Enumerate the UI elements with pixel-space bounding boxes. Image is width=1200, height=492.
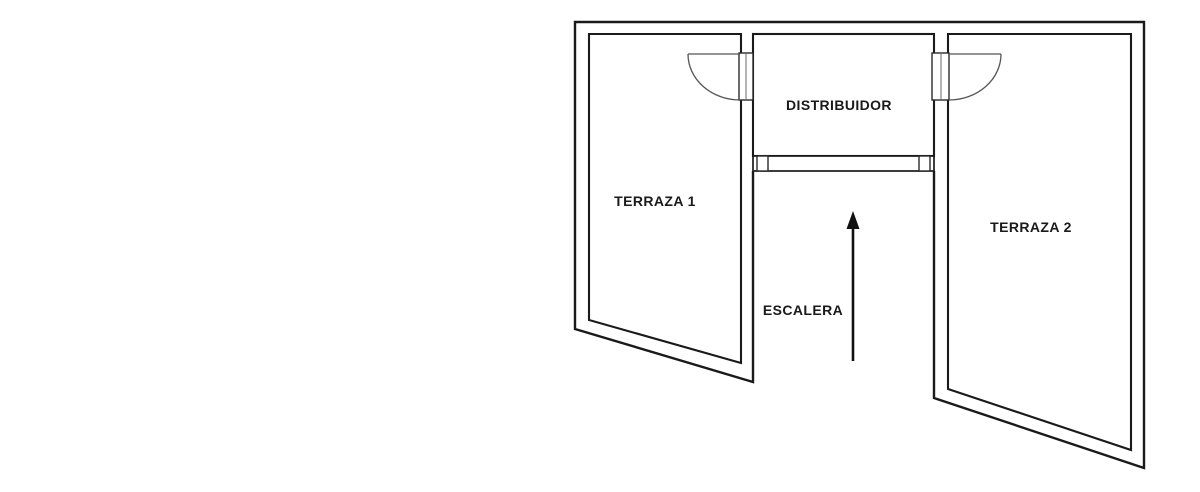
floorplan-canvas: TERRAZA 1 DISTRIBUIDOR TERRAZA 2 ESCALER…: [0, 0, 1200, 492]
floorplan-svg: TERRAZA 1 DISTRIBUIDOR TERRAZA 2 ESCALER…: [0, 0, 1200, 492]
arrow-up-icon: [847, 211, 860, 361]
outer-boundary-wall: [575, 22, 1144, 468]
door-left-swing-arc: [688, 54, 740, 100]
threshold-left-jamb: [757, 156, 768, 171]
threshold-right-jamb: [919, 156, 930, 171]
stairs-arrow-head: [847, 211, 860, 229]
room-label-escalera: ESCALERA: [763, 302, 843, 318]
room-label-distribuidor: DISTRIBUIDOR: [786, 97, 892, 113]
stair-threshold-band: [753, 156, 934, 171]
door-right-swing-arc: [949, 54, 1001, 100]
terraza-2-room-outline: [948, 34, 1131, 450]
distribuidor-room-outline: [753, 34, 934, 156]
room-label-terraza-2: TERRAZA 2: [990, 219, 1072, 235]
room-label-terraza-1: TERRAZA 1: [614, 193, 696, 209]
